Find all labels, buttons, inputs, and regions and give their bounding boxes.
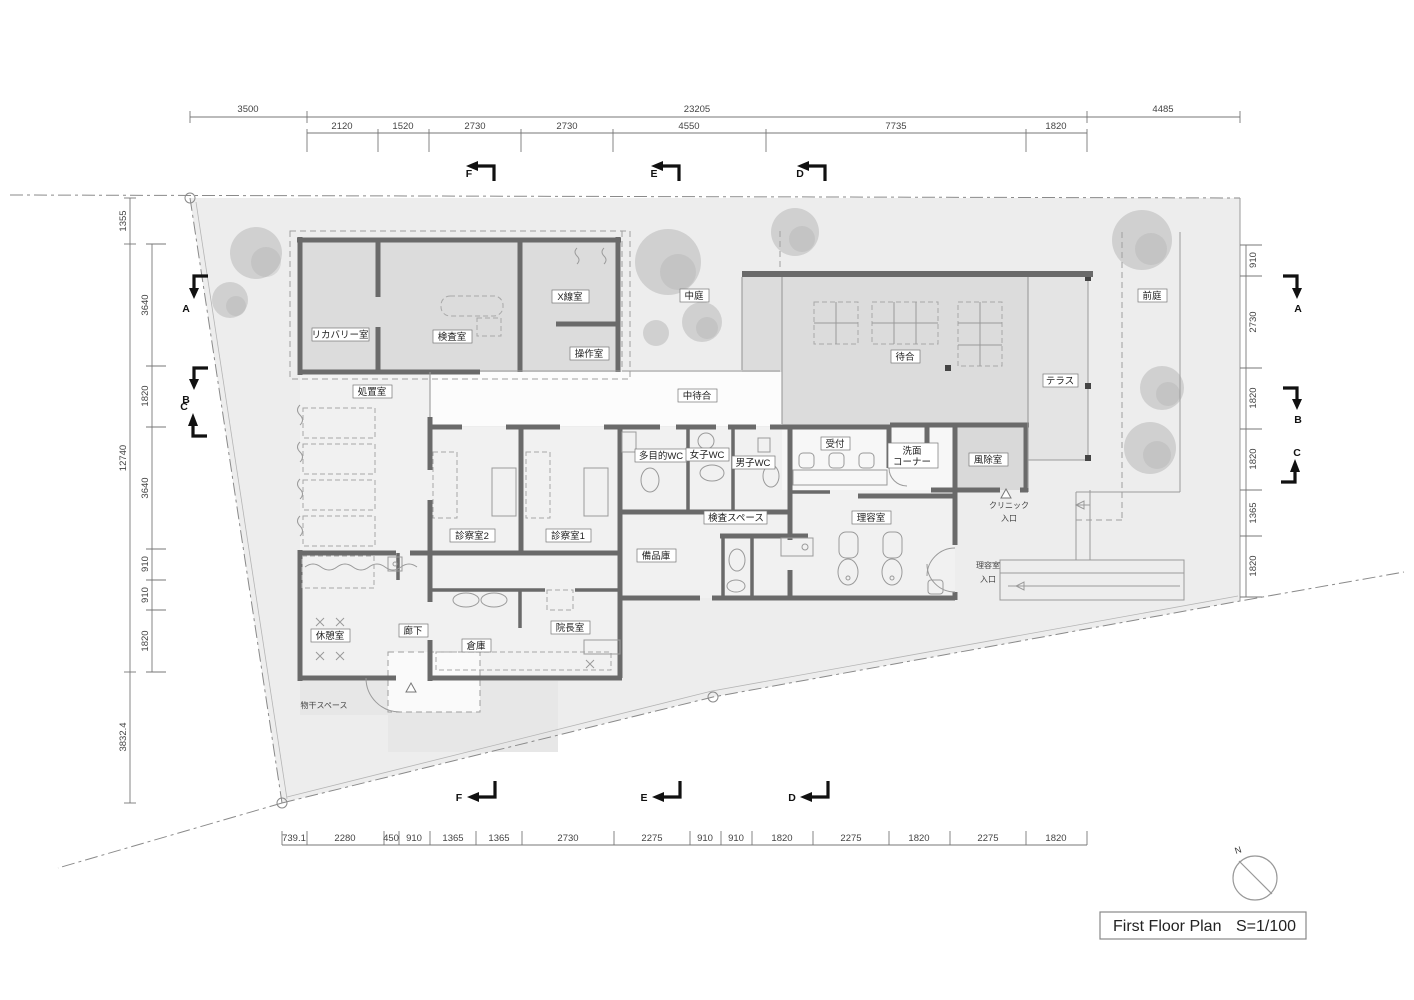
svg-text:B: B	[1294, 414, 1302, 426]
label-clinic-entrance-1: クリニック	[989, 501, 1029, 510]
svg-text:910: 910	[728, 833, 744, 844]
label-exam: 検査室	[438, 331, 467, 343]
svg-text:450: 450	[383, 833, 399, 844]
svg-text:2730: 2730	[464, 121, 485, 132]
svg-text:F: F	[466, 168, 473, 180]
svg-text:2275: 2275	[977, 833, 998, 844]
floor-plan-canvas: リカバリー室 検査室 X線室 操作室 処置室 中庭 中待合 待合 テラス 前庭 …	[0, 0, 1414, 1000]
label-barber: 理容室	[857, 512, 886, 524]
floor-plan-drawing: リカバリー室 検査室 X線室 操作室 処置室 中庭 中待合 待合 テラス 前庭 …	[0, 0, 1414, 1000]
svg-text:910: 910	[140, 556, 151, 572]
label-clinic-entrance-2: 入口	[1001, 514, 1017, 523]
svg-text:1520: 1520	[392, 121, 413, 132]
label-inner-waiting: 中待合	[683, 390, 712, 402]
svg-text:4550: 4550	[678, 121, 699, 132]
label-consult1: 診察室1	[551, 530, 585, 542]
svg-text:A: A	[1294, 303, 1302, 315]
svg-text:1820: 1820	[1248, 555, 1259, 576]
svg-text:12740: 12740	[118, 445, 129, 471]
label-barber-entrance-1: 理容室	[976, 560, 1000, 570]
north-arrow: N	[1233, 844, 1277, 900]
label-wash-corner-1: 洗面	[902, 445, 921, 457]
svg-text:A: A	[182, 303, 190, 315]
label-treatment: 処置室	[358, 386, 387, 398]
label-front-garden: 前庭	[1142, 290, 1162, 302]
svg-text:2120: 2120	[331, 121, 352, 132]
label-courtyard: 中庭	[684, 290, 704, 302]
svg-text:C: C	[180, 401, 188, 413]
svg-text:7735: 7735	[885, 121, 906, 132]
label-consult2: 診察室2	[455, 530, 489, 542]
svg-text:1355: 1355	[118, 210, 129, 231]
svg-text:910: 910	[406, 833, 422, 844]
label-director: 院長室	[556, 622, 585, 634]
label-wc-multi: 多目的WC	[639, 450, 683, 462]
svg-text:1365: 1365	[488, 833, 509, 844]
north-label: N	[1233, 844, 1242, 856]
label-wc-men: 男子WC	[736, 458, 771, 469]
svg-text:D: D	[796, 168, 804, 180]
drawing-title: First Floor Plan	[1113, 918, 1221, 935]
svg-text:D: D	[788, 792, 796, 804]
svg-text:1820: 1820	[1248, 448, 1259, 469]
label-terrace: テラス	[1046, 376, 1074, 387]
svg-text:2275: 2275	[840, 833, 861, 844]
label-xray: X線室	[557, 291, 582, 303]
label-wash-corner-2: コーナー	[893, 457, 931, 468]
svg-text:2275: 2275	[641, 833, 662, 844]
svg-text:3500: 3500	[237, 104, 258, 115]
svg-text:910: 910	[140, 587, 151, 603]
svg-text:1820: 1820	[908, 833, 929, 844]
svg-text:23205: 23205	[684, 104, 710, 115]
label-recovery: リカバリー室	[311, 329, 368, 341]
svg-text:2730: 2730	[556, 121, 577, 132]
svg-text:1820: 1820	[140, 630, 151, 651]
svg-text:1820: 1820	[1045, 121, 1066, 132]
svg-text:2730: 2730	[557, 833, 578, 844]
label-control: 操作室	[575, 348, 604, 360]
svg-text:2280: 2280	[334, 833, 355, 844]
svg-text:1820: 1820	[771, 833, 792, 844]
svg-text:1820: 1820	[140, 385, 151, 406]
svg-text:1365: 1365	[442, 833, 463, 844]
label-waiting: 待合	[895, 351, 915, 363]
svg-text:1365: 1365	[1248, 502, 1259, 523]
svg-text:3640: 3640	[140, 477, 151, 498]
title-block: First Floor Plan S=1/100	[1100, 912, 1306, 939]
svg-text:C: C	[1293, 447, 1301, 459]
label-wc-women: 女子WC	[690, 449, 725, 461]
label-storage: 倉庫	[466, 640, 486, 652]
label-corridor: 廊下	[403, 625, 422, 637]
label-supply: 備品庫	[642, 550, 671, 562]
label-laundry: 物干スペース	[300, 700, 347, 710]
svg-text:E: E	[650, 168, 657, 180]
svg-text:1820: 1820	[1248, 387, 1259, 408]
drawing-scale: S=1/100	[1236, 918, 1296, 935]
svg-text:3832.4: 3832.4	[118, 722, 129, 751]
svg-text:4485: 4485	[1152, 104, 1173, 115]
svg-text:2730: 2730	[1248, 311, 1259, 332]
label-exam-space: 検査スペース	[708, 512, 764, 524]
label-barber-entrance-2: 入口	[980, 575, 996, 584]
label-break-room: 休憩室	[316, 630, 345, 642]
svg-text:F: F	[456, 792, 463, 804]
svg-text:910: 910	[697, 833, 713, 844]
svg-text:739.1: 739.1	[282, 833, 306, 844]
svg-text:910: 910	[1248, 252, 1259, 268]
svg-text:3640: 3640	[140, 294, 151, 315]
svg-text:1820: 1820	[1045, 833, 1066, 844]
svg-text:E: E	[640, 792, 647, 804]
label-vestibule: 風除室	[974, 454, 1003, 466]
label-reception: 受付	[825, 438, 845, 450]
